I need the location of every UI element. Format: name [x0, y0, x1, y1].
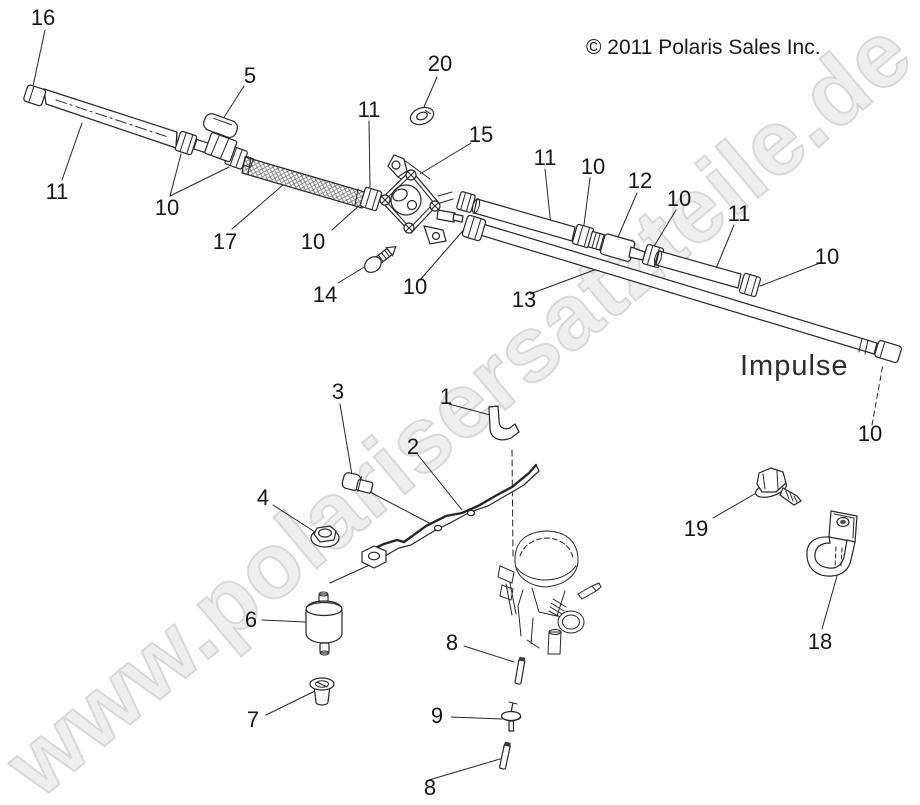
- part-fitting: [341, 472, 374, 495]
- part-screw: [362, 241, 401, 275]
- part-hose-fitting: [462, 215, 487, 242]
- callout-9-27: 9: [431, 703, 443, 729]
- callout-10-14: 10: [815, 244, 839, 270]
- callout-15-4: 15: [469, 122, 493, 148]
- impulse-annotation: Impulse: [740, 350, 849, 383]
- part-hose-fitting: [739, 273, 761, 297]
- part-end-cap: [23, 84, 46, 106]
- part-inline-filter: [588, 231, 650, 262]
- part-vent-tube-left: [44, 89, 177, 148]
- callout-13-17: 13: [512, 287, 536, 313]
- callout-10-13: 10: [301, 229, 325, 255]
- callout-3-18: 3: [332, 379, 344, 405]
- part-check-valve: [502, 702, 522, 731]
- part-washer: [408, 104, 436, 127]
- part-damper: [306, 592, 342, 655]
- callout-11-3: 11: [358, 97, 381, 123]
- callout-8-26: 8: [446, 630, 458, 656]
- callout-11-8: 11: [46, 179, 69, 205]
- callout-7-28: 7: [247, 707, 259, 733]
- part-flange-nut: [311, 526, 339, 547]
- callout-10-9: 10: [667, 186, 691, 212]
- part-carburetor: [498, 531, 601, 654]
- part-pin: [499, 742, 510, 770]
- part-pin: [515, 657, 526, 685]
- callout-17-12: 17: [213, 229, 237, 255]
- copyright-notice: © 2011 Polaris Sales Inc.: [586, 36, 821, 60]
- callout-1-19: 1: [440, 384, 452, 410]
- callout-10-15: 10: [403, 274, 427, 300]
- part-end-cap: [874, 340, 902, 363]
- callout-18-25: 18: [808, 629, 832, 655]
- callout-20-2: 20: [428, 51, 452, 77]
- callout-16-0: 16: [31, 5, 55, 31]
- callout-14-16: 14: [313, 282, 337, 308]
- part-clamp: [807, 511, 857, 576]
- callout-12-7: 12: [628, 168, 652, 194]
- callout-5-1: 5: [244, 63, 256, 89]
- callout-10-6: 10: [581, 154, 605, 180]
- callout-11-11: 11: [728, 201, 751, 227]
- callout-10-20: 10: [858, 421, 882, 447]
- callout-4-22: 4: [257, 485, 269, 511]
- part-braided-hose: [242, 157, 365, 208]
- callout-11-5: 11: [534, 145, 557, 171]
- callout-19-23: 19: [684, 516, 708, 542]
- part-hex-screw: [754, 468, 801, 505]
- callout-8-29: 8: [424, 775, 436, 801]
- callout-2-21: 2: [407, 434, 419, 460]
- diagram-canvas: www.polarisersatzteile.de .w{fill:#fffff…: [0, 0, 920, 805]
- callout-6-24: 6: [245, 607, 257, 633]
- part-hose-fitting: [360, 187, 382, 211]
- parts-line-art: .w{fill:#ffffff}.thin{stroke-width:1}.ld…: [0, 0, 920, 805]
- part-fuel-pump: [380, 155, 463, 244]
- part-elbow-hose: [489, 406, 519, 440]
- part-hose-fitting: [175, 131, 197, 155]
- callout-10-10: 10: [155, 195, 179, 221]
